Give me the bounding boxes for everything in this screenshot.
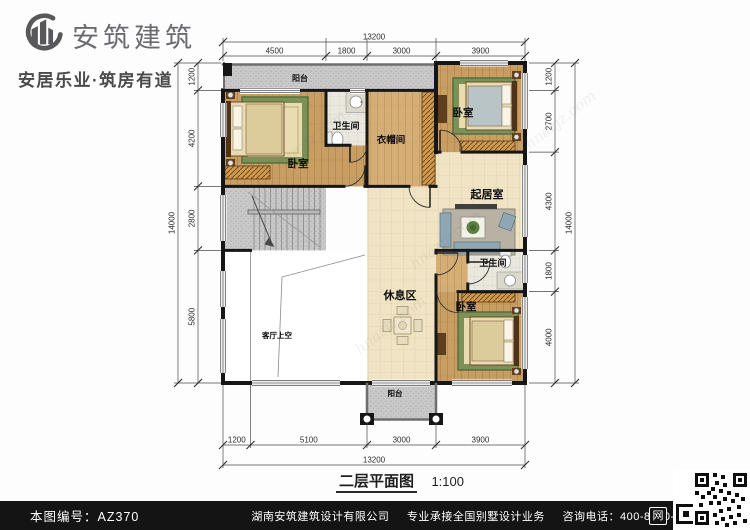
qr-panel: [673, 470, 750, 530]
window-top-bedroom-tr: [460, 60, 508, 67]
dim-label: 3900: [472, 47, 490, 56]
room-label-bedroom-top-left: 卧室: [288, 157, 309, 170]
room-label-bedroom-bottom-right: 卧室: [456, 300, 477, 313]
company-name: 湖南安筑建筑设计有限公司: [251, 511, 389, 523]
room-label-balcony-top: 阳台: [292, 73, 308, 83]
room-label-rest-area: 休息区: [383, 288, 417, 302]
dim-label-total-bottom: 13200: [363, 456, 386, 465]
dim-label: 2800: [188, 209, 197, 227]
balcony-top-floor: [223, 65, 436, 90]
room-label-bathroom-top: 卫生间: [332, 120, 359, 131]
void-floor: [223, 250, 367, 383]
window-left-void-1: [220, 271, 227, 307]
company-logo-icon: [18, 12, 64, 58]
window-right-living: [522, 165, 529, 237]
window-balcony-wall-bath: [350, 87, 365, 94]
net-badge: 网: [649, 507, 667, 525]
page: 安筑建筑 安居乐业·筑房有道: [0, 0, 750, 530]
room-label-living: 起居室: [470, 187, 504, 201]
dim-label: 3000: [393, 436, 411, 445]
sliding-door-balcony-bottom: [372, 380, 430, 387]
drawing-caption: 二层平面图 1:100: [260, 470, 540, 491]
qr-code: [693, 471, 749, 527]
dim-label: 1800: [545, 262, 554, 280]
dim-label: 4200: [188, 129, 197, 147]
dim-label-total-top: 13200: [363, 33, 386, 42]
dim-label-total-left: 14000: [168, 211, 177, 234]
dresser-top-right: [438, 95, 447, 123]
dim-label: 5800: [188, 307, 197, 325]
window-right-bedroom-br: [522, 297, 529, 369]
dim-label-total-right: 14000: [565, 211, 574, 234]
caption-title: 二层平面图: [336, 473, 417, 493]
window-bottom-void: [252, 380, 340, 387]
dim-label: 4000: [545, 328, 554, 346]
watermark-text: hnazjz.com: [521, 87, 599, 154]
room-label-cloakroom: 衣帽间: [377, 134, 406, 146]
wardrobe-top-right: [460, 141, 515, 151]
hall-floor: [326, 145, 367, 186]
dim-label: 1200: [188, 67, 197, 85]
corridor-floor: [436, 250, 468, 291]
window-bottom-bedroom-br: [452, 380, 512, 387]
staircase-floor: [223, 186, 326, 250]
room-label-bedroom-top-right: 卧室: [453, 106, 474, 119]
window-right-bath: [522, 255, 529, 283]
room-label-void: 客厅上空: [261, 330, 292, 340]
company-services: 专业承接全国别墅设计业务: [407, 511, 545, 523]
dim-label: 3900: [472, 436, 490, 445]
dim-label: 4500: [266, 47, 284, 56]
dim-label: 1200: [545, 67, 554, 85]
caption-scale: 1:100: [431, 474, 464, 489]
window-right-bedroom-tr: [522, 73, 529, 129]
floor-plan-drawing: hnazjz.com hnazjz.com hnazjz.com hnazjz.…: [160, 25, 600, 483]
dim-label: 1800: [338, 47, 356, 56]
room-label-balcony-bottom: 阳台: [388, 388, 403, 398]
wardrobe-top-left: [225, 166, 270, 179]
window-left-bedroom: [220, 103, 227, 137]
room-label-bathroom-bottom: 卫生间: [479, 257, 506, 268]
window-balcony-wall-bedroom: [240, 87, 300, 94]
footer-bar: 本图编号：AZ370 湖南安筑建筑设计有限公司 专业承接全国别墅设计业务 咨询电…: [0, 501, 750, 530]
dim-label: 3000: [393, 47, 411, 56]
drawing-number: 本图编号：AZ370: [30, 506, 139, 525]
window-left-void-2: [220, 319, 227, 373]
dim-label: 2700: [545, 112, 554, 130]
window-left-stairs: [220, 195, 227, 241]
cloakroom-wardrobe: [422, 92, 435, 185]
company-info: 湖南安筑建筑设计有限公司 专业承接全国别墅设计业务 咨询电话：400-8070-…: [251, 508, 707, 524]
dim-label: 4300: [545, 192, 554, 210]
dresser-bottom-right: [437, 333, 446, 355]
dim-label: 1200: [228, 436, 246, 445]
dim-label: 5100: [300, 436, 318, 445]
